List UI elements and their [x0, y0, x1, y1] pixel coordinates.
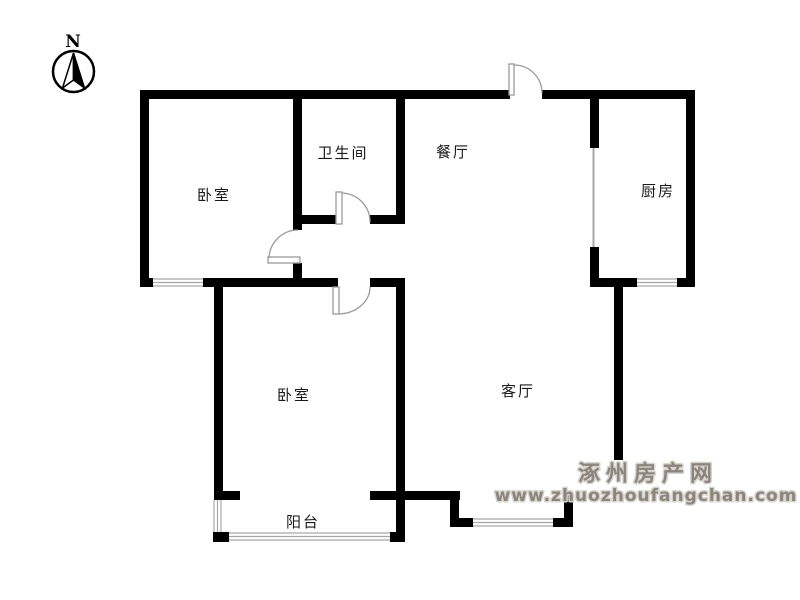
wall-bedroom2-right	[396, 278, 405, 542]
label-balcony: 阳台	[286, 513, 320, 531]
wall-living-right	[614, 287, 623, 460]
floor-plan-drawing: N 卧室 卫生间 餐厅 厨房 卧室 客厅 阳台 涿州房产网 www.zhuozh…	[0, 0, 800, 600]
floor-plan-canvas: N 卧室 卫生间 餐厅 厨房 卧室 客厅 阳台 涿州房产网 www.zhuozh…	[0, 0, 800, 600]
window-balcony-left	[213, 500, 222, 532]
window-bedroom-top	[153, 278, 203, 287]
window-living-bay	[473, 518, 553, 527]
door-entry	[509, 64, 542, 95]
wall-bedroom2-left	[214, 278, 223, 500]
wall-kitchen-bottom-left	[590, 278, 637, 287]
wall-bedroom2-bottom-left	[214, 491, 240, 500]
compass: N	[53, 32, 94, 92]
wall-top-left	[140, 90, 510, 99]
wall-kitchen-right	[686, 90, 695, 287]
window-balcony-bottom	[229, 532, 390, 541]
wall-top-right	[542, 90, 695, 99]
wall-kitchen-left-upper	[590, 99, 599, 148]
door-bedroom-bottom	[333, 287, 370, 314]
window-kitchen	[637, 278, 677, 287]
watermark: 涿州房产网 www.zhuozhoufangchan.com	[495, 461, 798, 506]
label-living-room: 客厅	[501, 382, 535, 400]
compass-needle-left	[63, 53, 74, 88]
wall-living-bottom	[370, 491, 460, 500]
wall-bathroom-bottom-left	[293, 215, 337, 224]
compass-needle-right	[74, 53, 85, 88]
door-bedroom-top	[268, 230, 300, 263]
wall-bedroom-bathroom-divider-upper	[293, 99, 302, 230]
wall-bathroom-right	[396, 90, 405, 224]
label-dining: 餐厅	[436, 143, 470, 161]
watermark-site-url: www.zhuozhoufangchan.com	[495, 486, 798, 506]
wall-bay-bottom-left	[450, 518, 473, 527]
label-kitchen: 厨房	[641, 182, 675, 200]
wall-balcony-corner-right	[390, 532, 405, 542]
compass-north-label: N	[65, 32, 81, 52]
door-bathroom	[336, 192, 370, 224]
wall-balcony-corner-left	[213, 532, 229, 542]
wall-exterior-left	[140, 90, 149, 287]
watermark-site-name: 涿州房产网	[578, 461, 718, 487]
label-bedroom-top: 卧室	[197, 186, 231, 204]
label-bathroom: 卫生间	[317, 144, 368, 162]
label-bedroom-bottom: 卧室	[277, 386, 311, 404]
